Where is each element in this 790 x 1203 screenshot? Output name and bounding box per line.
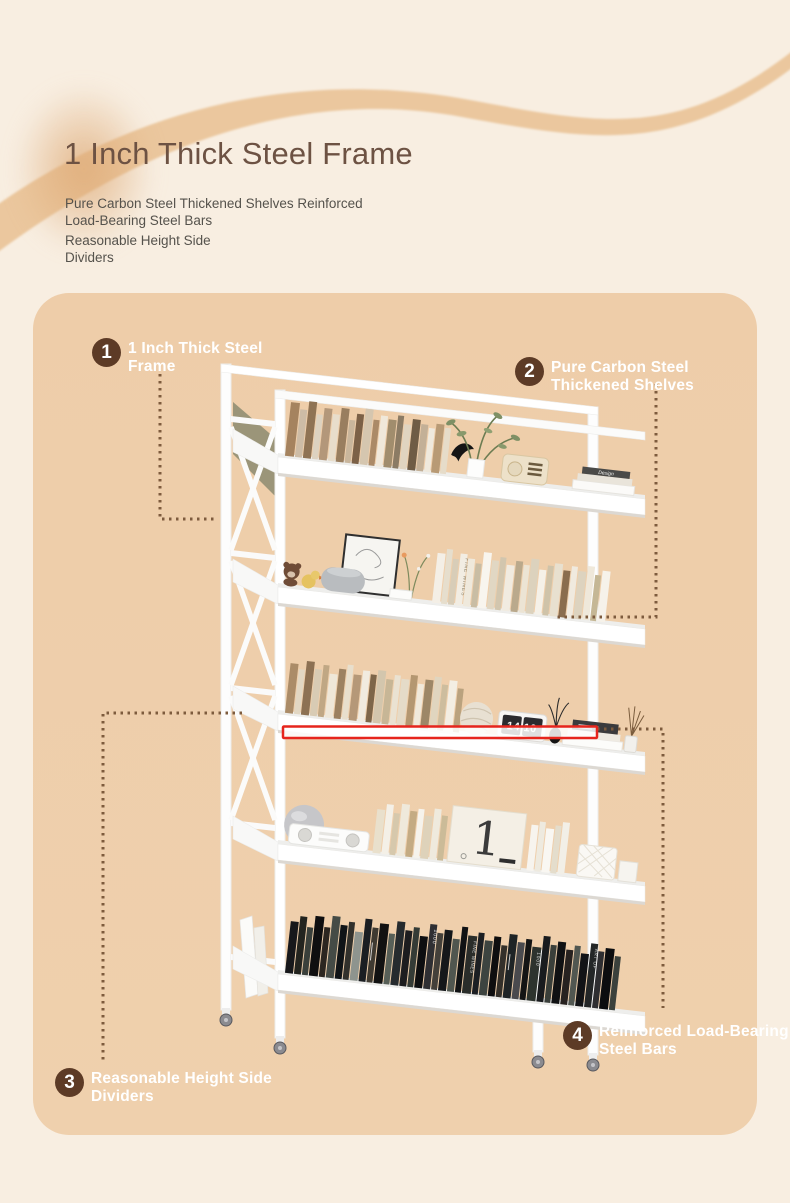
callout-4: 4 Reinforced Load-Bearing Steel Bars <box>563 1021 789 1058</box>
callout-4-number: 4 <box>572 1025 583 1047</box>
callout-4-leader-line <box>597 729 663 1008</box>
steel-bar-highlight-box <box>283 727 597 739</box>
callout-2-leader-line <box>556 384 656 617</box>
callout-4-label: Reinforced Load-Bearing Steel Bars <box>599 1021 789 1058</box>
callout-4-marker: 4 <box>563 1021 592 1050</box>
callout-3-marker: 3 <box>55 1068 84 1097</box>
callout-3: 3 Reasonable Height Side Dividers <box>55 1068 272 1105</box>
callout-2-number: 2 <box>524 361 535 383</box>
callout-2-label: Pure Carbon Steel Thickened Shelves <box>551 357 694 394</box>
callout-2: 2 Pure Carbon Steel Thickened Shelves <box>515 357 694 394</box>
product-showcase-page: 1 Inch Thick Steel Frame Pure Carbon Ste… <box>0 0 790 1203</box>
callout-3-leader-line <box>103 713 242 1062</box>
callout-3-number: 3 <box>64 1072 75 1094</box>
callout-2-marker: 2 <box>515 357 544 386</box>
callout-3-label: Reasonable Height Side Dividers <box>91 1068 272 1105</box>
callout-1: 1 1 Inch Thick Steel Frame <box>92 338 263 375</box>
callout-1-label: 1 Inch Thick Steel Frame <box>128 338 263 375</box>
callout-1-marker: 1 <box>92 338 121 367</box>
callout-1-leader-line <box>160 374 216 519</box>
callout-1-number: 1 <box>101 342 112 364</box>
